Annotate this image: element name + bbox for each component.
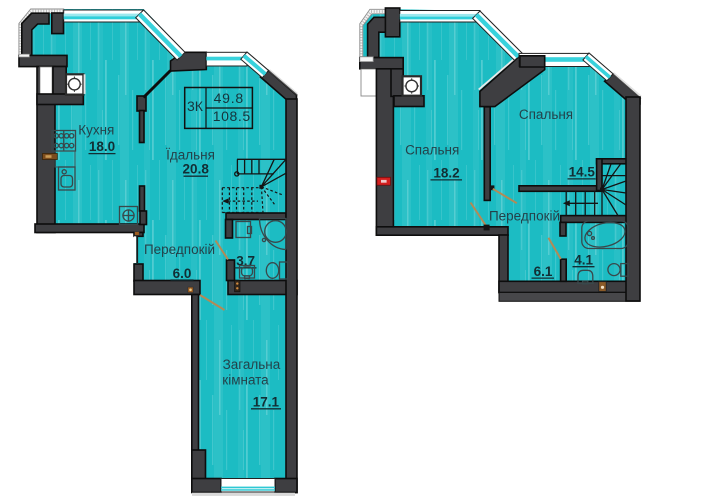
svg-text:6.0: 6.0	[173, 266, 192, 281]
svg-text:18.0: 18.0	[89, 139, 115, 154]
svg-text:14.5: 14.5	[569, 165, 596, 180]
svg-text:18.2: 18.2	[433, 166, 459, 181]
svg-text:4.1: 4.1	[574, 252, 593, 267]
svg-text:Передпокій: Передпокій	[144, 242, 215, 257]
svg-text:6.1: 6.1	[534, 264, 553, 279]
svg-text:20.8: 20.8	[183, 161, 210, 176]
svg-text:Передпокій: Передпокій	[489, 209, 560, 224]
svg-text:108.5: 108.5	[213, 108, 251, 124]
svg-text:Їдальня: Їдальня	[166, 148, 215, 163]
svg-text:Загальна: Загальна	[223, 357, 281, 372]
svg-text:Спальня: Спальня	[519, 107, 573, 122]
svg-text:Кухня: Кухня	[78, 122, 114, 137]
svg-text:3К: 3К	[187, 98, 204, 114]
svg-text:Спальня: Спальня	[405, 143, 459, 158]
svg-text:17.1: 17.1	[253, 395, 280, 410]
svg-text:49.8: 49.8	[214, 90, 244, 106]
svg-text:кімната: кімната	[222, 372, 269, 387]
